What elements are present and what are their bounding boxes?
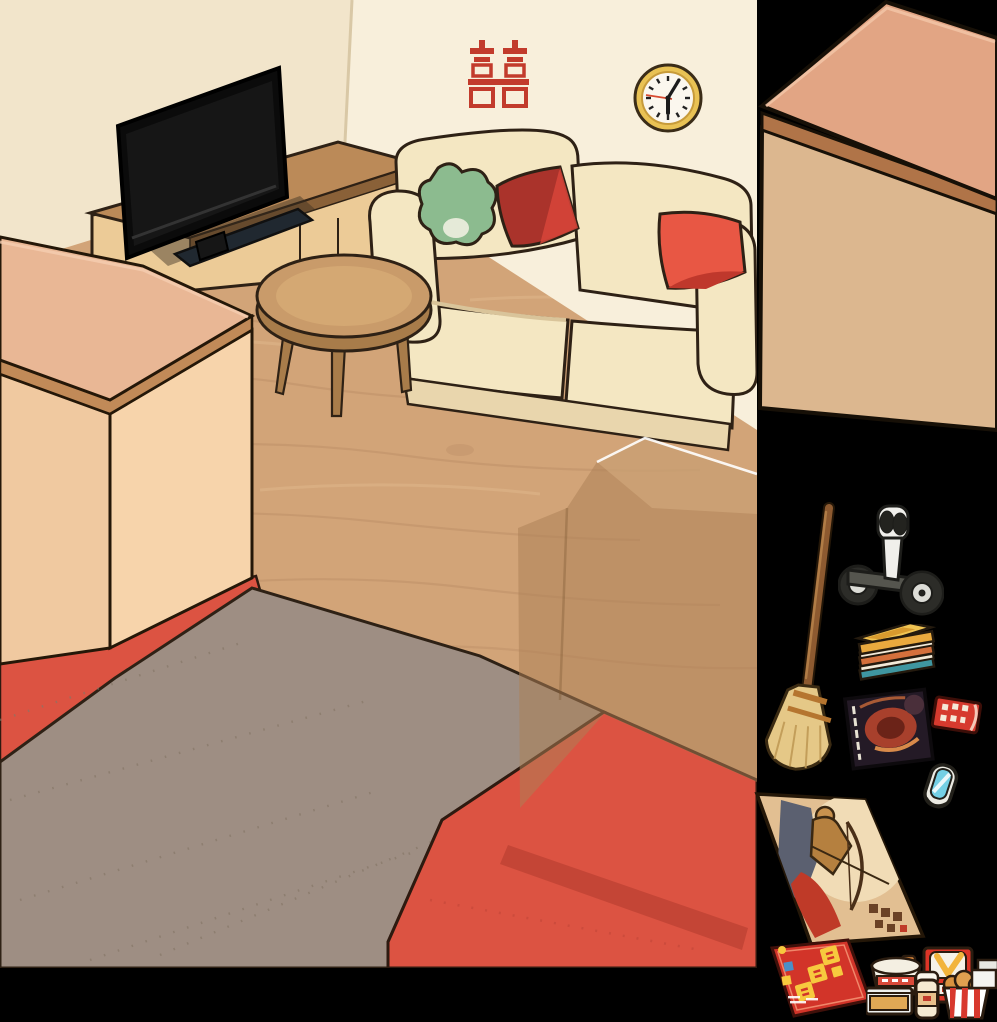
tray-item-poster[interactable]	[753, 784, 933, 952]
room-illustration	[0, 0, 757, 968]
tray-item-flyer[interactable]: 特惠狂欢购	[766, 938, 874, 1020]
fastfood-takeout-box	[866, 988, 912, 1014]
tray-item-fastfood[interactable]: 华莱士	[866, 946, 997, 1022]
room-scene: 囍	[0, 0, 757, 968]
fastfood-napkins	[972, 960, 997, 988]
wall-clock	[635, 65, 701, 131]
game-stage: 囍	[0, 0, 997, 1022]
tray-item-books[interactable]	[850, 624, 942, 692]
fastfood-drink-cup	[916, 972, 938, 1018]
broom-head	[765, 682, 836, 772]
tray-item-storage-box[interactable]	[757, 0, 997, 432]
tray-item-coupons[interactable]	[929, 692, 985, 738]
